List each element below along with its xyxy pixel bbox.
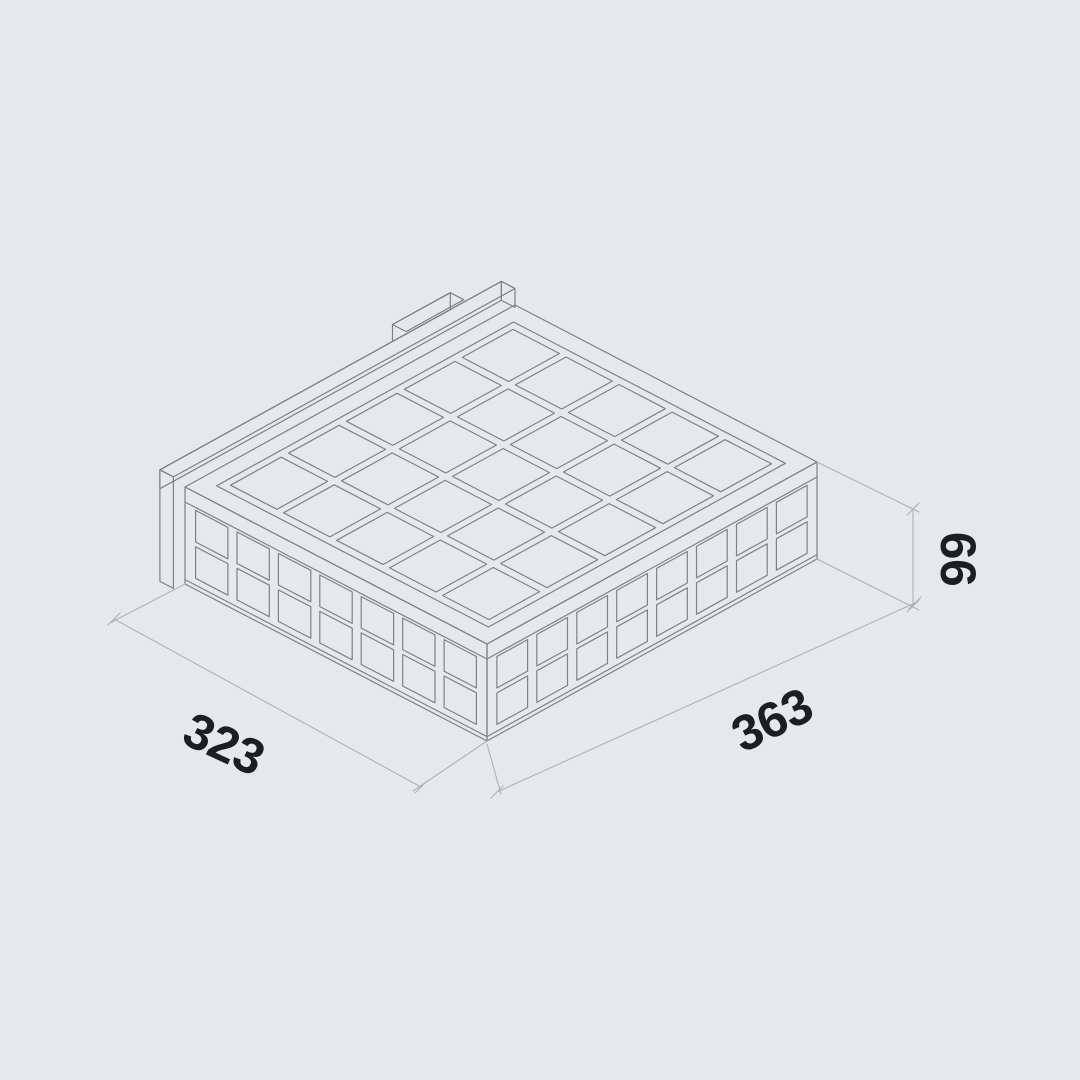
right-grid-cell	[697, 529, 728, 578]
right-grid-cell	[497, 640, 528, 688]
top-grid-cell	[621, 412, 718, 464]
extension-line	[817, 462, 919, 512]
top-grid-cell	[404, 361, 501, 413]
left-grid-cell	[237, 532, 269, 580]
dimension-line	[114, 619, 421, 787]
top-grid-cell	[462, 329, 559, 381]
dimension-tick	[491, 786, 503, 798]
top-grid-cell	[443, 568, 540, 620]
extension-line	[817, 559, 919, 610]
top-grid-cell	[395, 480, 492, 532]
top-grid-cell	[515, 357, 612, 409]
top-grid-cell	[674, 440, 771, 492]
right-grid-cell	[657, 552, 688, 600]
left-face-band	[185, 502, 487, 659]
top-grid-cell	[342, 453, 439, 505]
left-grid-cell	[361, 597, 393, 645]
right-grid-cell	[617, 574, 648, 622]
dimension-label-height: 66	[930, 532, 986, 587]
top-face	[185, 305, 817, 644]
right-grid-cell	[776, 485, 807, 534]
top-grid-cell	[448, 508, 545, 560]
left-grid-cell	[196, 510, 228, 558]
top-grid-cell	[337, 512, 434, 564]
dimension-labels: 323 363 66	[175, 532, 986, 787]
left-grid-cell	[444, 640, 476, 688]
top-grid-cell	[563, 444, 660, 496]
dimension-tick	[909, 597, 921, 609]
top-grid-cell	[501, 536, 598, 588]
top-grid-cell	[568, 385, 665, 437]
rail-tab-face	[393, 293, 451, 342]
right-grid-cell	[577, 596, 608, 645]
left-grid-cell	[403, 618, 435, 666]
dimension-label-depth: 323	[175, 701, 273, 786]
right-grid-cell	[537, 618, 568, 667]
top-grid-cell	[399, 421, 496, 473]
top-grid-cell	[231, 457, 328, 509]
isometric-technical-drawing: 323 363 66	[0, 0, 1080, 1080]
top-grid-cell	[346, 393, 443, 445]
drawing-canvas: 323 363 66	[0, 0, 1080, 1080]
right-grid-cell	[737, 507, 768, 556]
extension-line	[110, 584, 185, 623]
left-grid-cell	[278, 554, 310, 602]
rail-front-face	[160, 281, 502, 488]
dimension-tick	[415, 781, 427, 793]
top-grid-cell	[453, 449, 550, 501]
top-grid-cell	[390, 540, 487, 592]
top-grid-cell	[457, 389, 554, 441]
dimension-line	[497, 603, 915, 792]
top-grid-cell	[617, 472, 714, 524]
top-grid-cell	[510, 417, 607, 469]
top-grid-cell	[559, 504, 656, 556]
rail-tab-top	[393, 293, 464, 332]
dimension-label-width: 363	[723, 677, 821, 763]
left-grid-cell	[320, 575, 352, 623]
top-grid-cell	[284, 485, 381, 537]
top-grid-cell	[506, 476, 603, 528]
extension-line	[487, 744, 501, 794]
rail-top-face	[160, 281, 515, 477]
top-grid-cell	[289, 425, 386, 477]
